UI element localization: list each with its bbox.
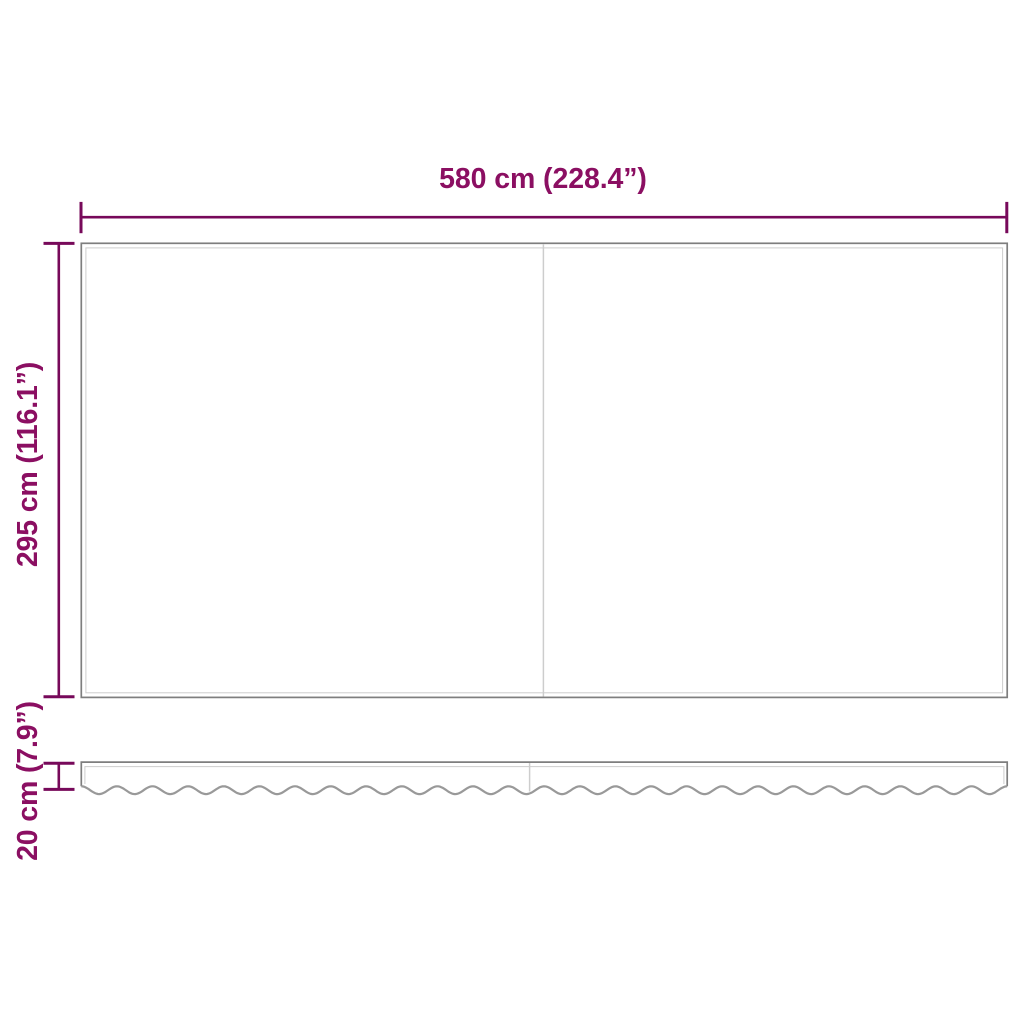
svg-text:295 cm (116.1”): 295 cm (116.1”): [12, 362, 44, 567]
svg-text:580 cm (228.4”): 580 cm (228.4”): [439, 163, 647, 195]
svg-text:20 cm (7.9”): 20 cm (7.9”): [12, 701, 44, 861]
